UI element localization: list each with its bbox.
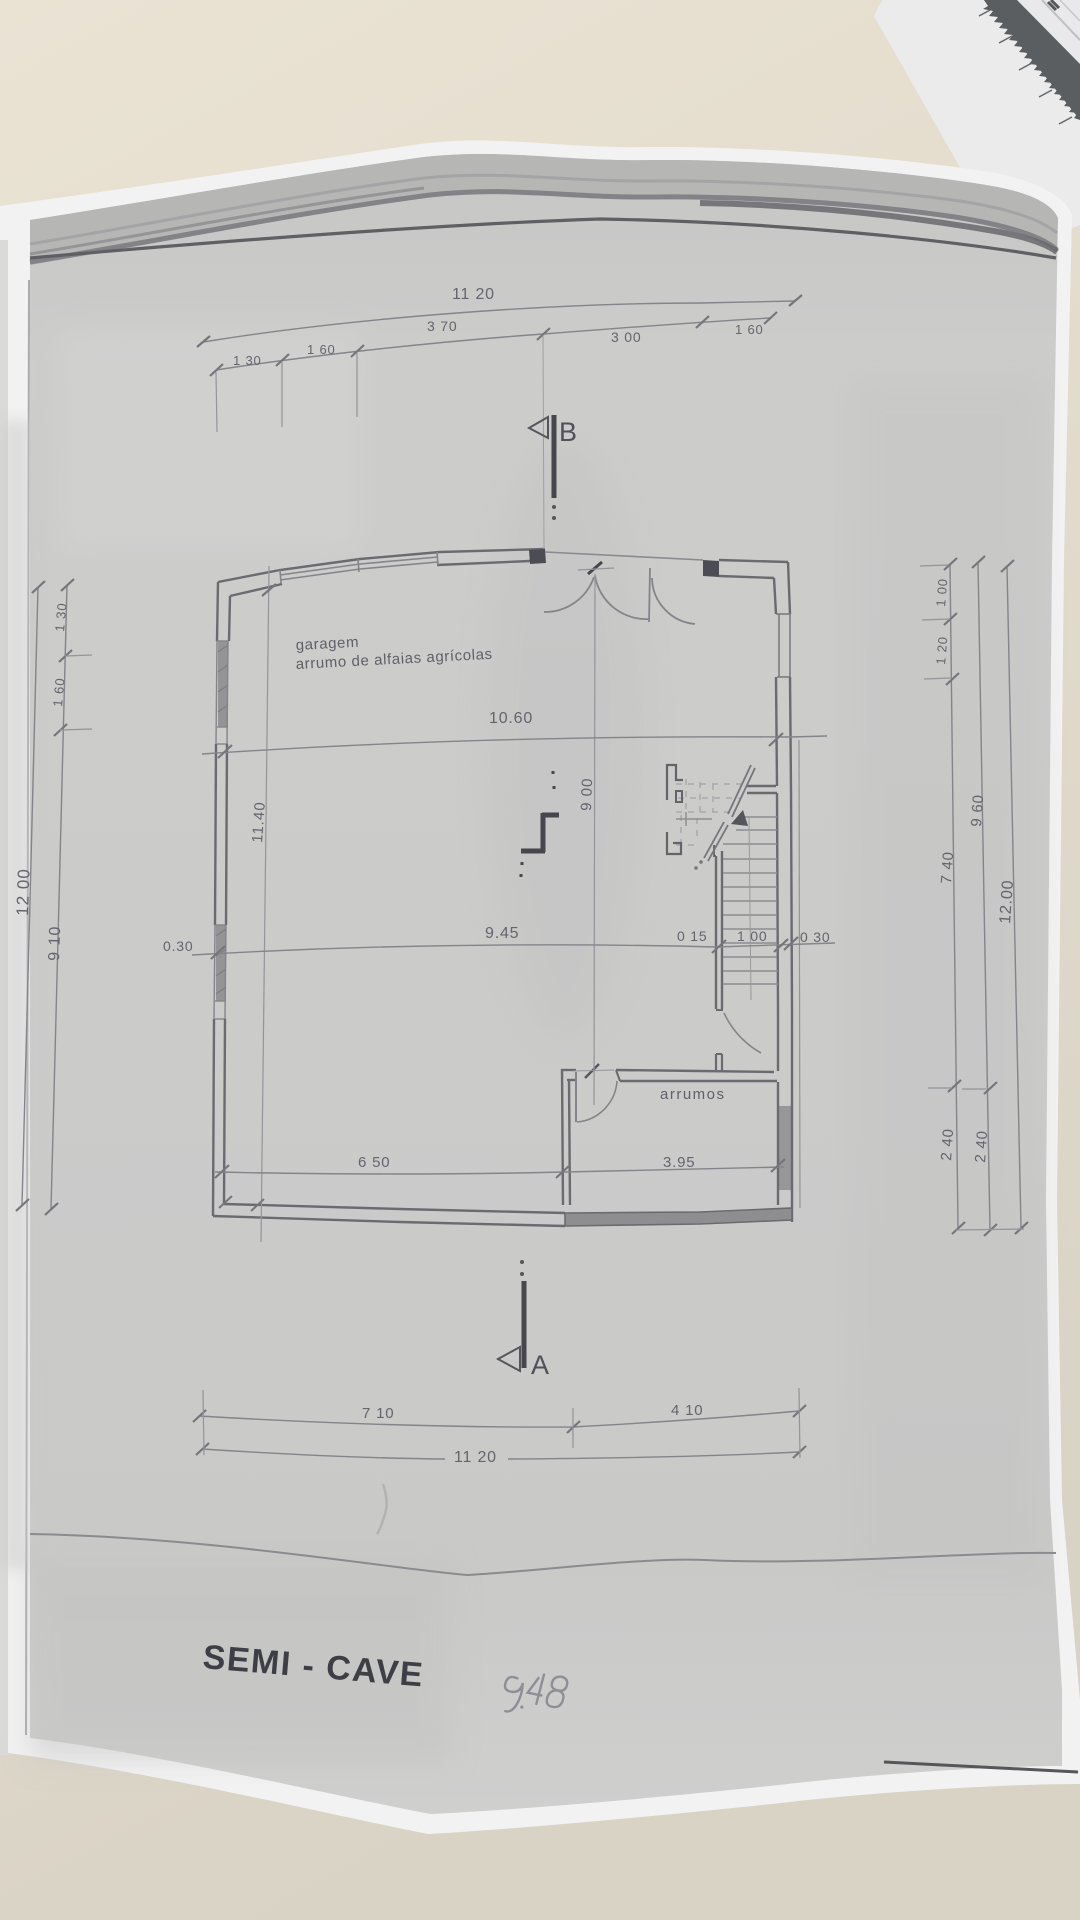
svg-text:3.95: 3.95 (663, 1154, 695, 1171)
svg-text:1 30: 1 30 (233, 353, 262, 368)
svg-text:1 20: 1 20 (933, 636, 950, 666)
svg-text:2 40: 2 40 (938, 1128, 957, 1162)
svg-text:1 00: 1 00 (933, 578, 950, 608)
svg-text:1 60: 1 60 (307, 342, 336, 357)
svg-text:4 10: 4 10 (671, 1402, 703, 1419)
svg-text:A: A (531, 1350, 549, 1380)
svg-text:11 20: 11 20 (454, 1449, 497, 1466)
svg-text:1 60: 1 60 (50, 677, 67, 708)
svg-text:9 60: 9 60 (968, 794, 987, 828)
svg-text:garagem: garagem (295, 634, 359, 654)
svg-text:3 00: 3 00 (611, 329, 641, 345)
svg-text:3 70: 3 70 (427, 318, 457, 334)
svg-text:1 60: 1 60 (735, 322, 764, 337)
svg-text:9 10: 9 10 (46, 925, 64, 961)
svg-text:0 15: 0 15 (677, 928, 707, 944)
svg-text:0 30: 0 30 (800, 929, 830, 945)
svg-text:7 40: 7 40 (938, 851, 957, 885)
svg-text:10.60: 10.60 (489, 710, 533, 727)
svg-text:7 10: 7 10 (362, 1405, 394, 1422)
svg-text:11 20: 11 20 (452, 286, 495, 303)
svg-text:B: B (559, 417, 577, 447)
svg-text:9.45: 9.45 (485, 925, 519, 942)
svg-text:12.00: 12.00 (997, 879, 1017, 924)
svg-text:11.40: 11.40 (249, 801, 269, 844)
svg-text:arrumos: arrumos (660, 1086, 726, 1103)
svg-text:2 40: 2 40 (972, 1130, 991, 1164)
svg-text:12 00: 12 00 (13, 868, 34, 916)
svg-text:9 00: 9 00 (578, 777, 596, 811)
svg-text:6 50: 6 50 (358, 1154, 390, 1171)
svg-text:1 00: 1 00 (737, 928, 767, 944)
svg-text:0.30: 0.30 (163, 938, 193, 954)
svg-text:1 30: 1 30 (52, 602, 69, 633)
